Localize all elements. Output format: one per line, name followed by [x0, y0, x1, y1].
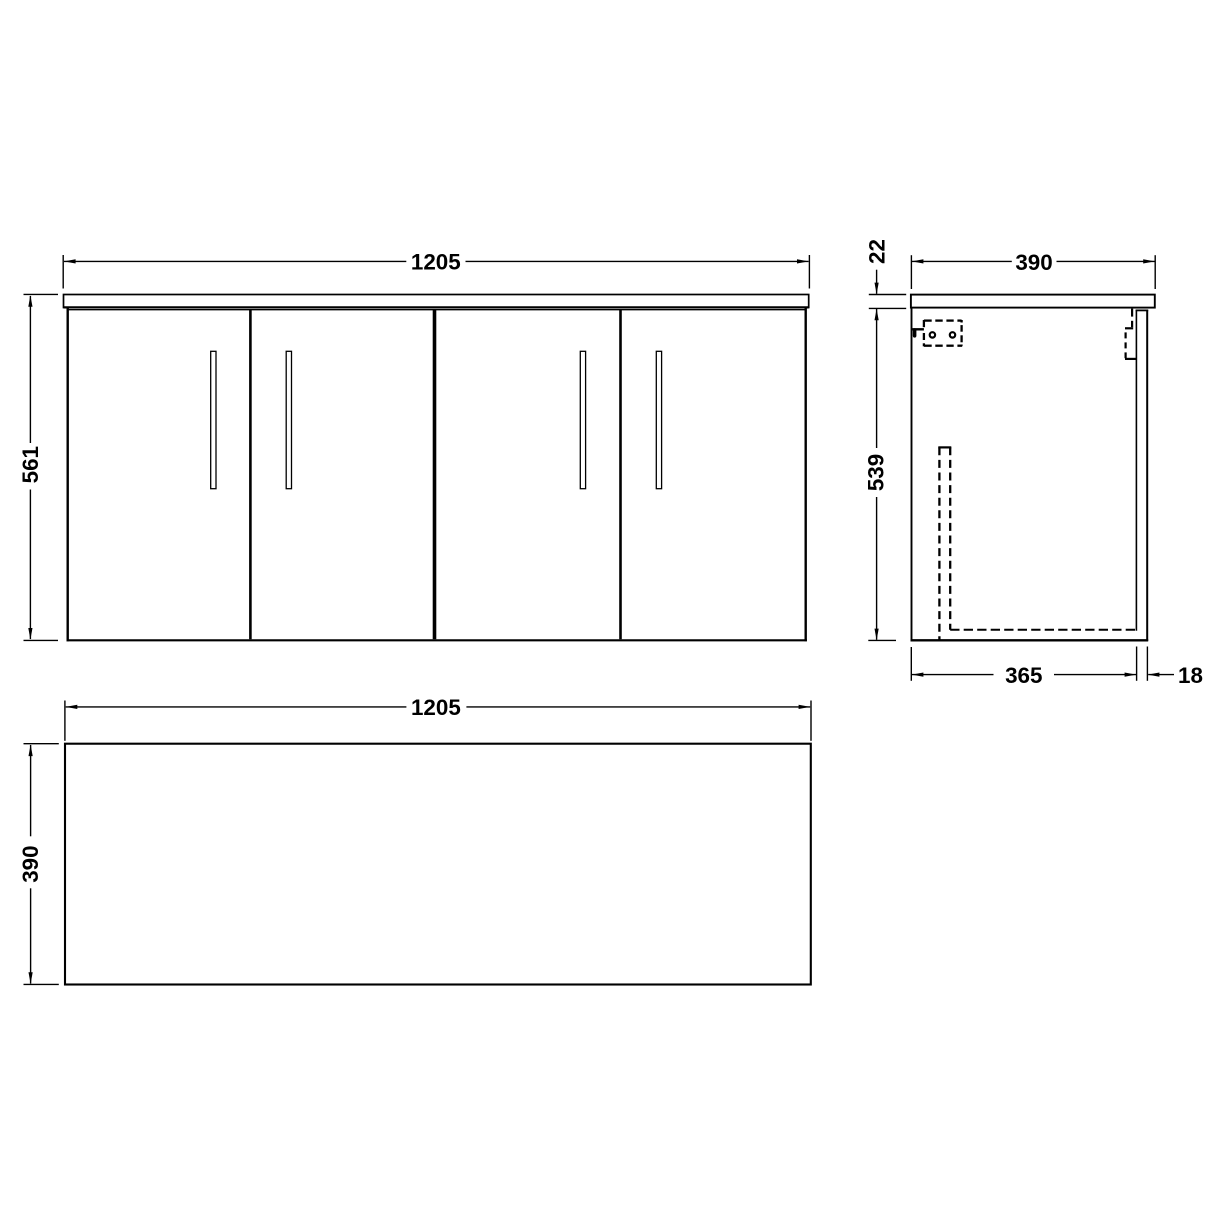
svg-text:561: 561 — [18, 446, 43, 483]
svg-text:390: 390 — [18, 845, 43, 882]
svg-text:1205: 1205 — [411, 250, 461, 275]
svg-text:365: 365 — [1005, 663, 1042, 688]
svg-text:1205: 1205 — [411, 695, 461, 720]
svg-text:18: 18 — [1178, 663, 1203, 688]
svg-text:22: 22 — [864, 239, 889, 264]
svg-text:390: 390 — [1015, 250, 1052, 275]
svg-text:539: 539 — [864, 454, 889, 491]
